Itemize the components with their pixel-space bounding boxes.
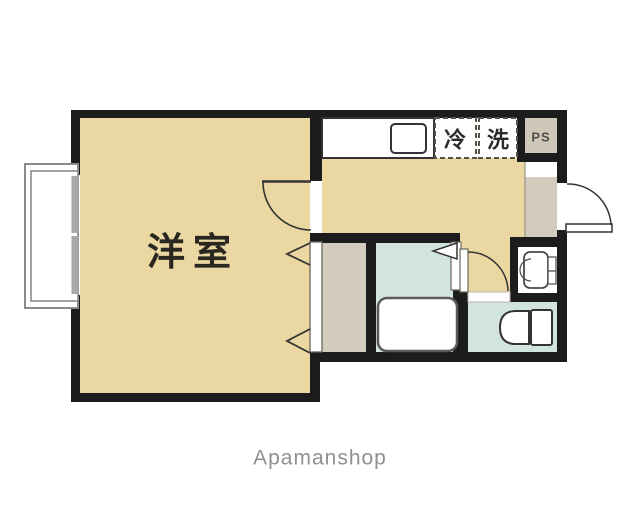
floorplan-drawing: 冷 洗 PS 洋室 Apamansh xyxy=(0,0,640,512)
wall-bottom-west xyxy=(71,393,320,402)
washbasin-bowl xyxy=(524,252,548,288)
entrance-door-icon xyxy=(566,184,612,232)
washbasin-icon xyxy=(520,252,556,288)
toilet-door-leaf xyxy=(460,249,468,292)
wall-closet-bath-divider xyxy=(366,242,376,352)
wall-ps-bottom xyxy=(517,153,557,162)
entrance-door-leaf xyxy=(566,224,612,232)
wall-room-divider xyxy=(310,110,322,181)
toilet-tank xyxy=(531,310,552,345)
room-door-opening xyxy=(310,181,322,233)
wall-closet-bath-top xyxy=(310,233,460,243)
washing-machine-label: 洗 xyxy=(487,128,509,153)
brand-watermark: Apamanshop xyxy=(253,447,387,470)
refrigerator-label: 冷 xyxy=(444,128,466,153)
wall-right-upper xyxy=(557,110,567,183)
washbasin-shelf-lower xyxy=(548,271,556,284)
window-sash-upper xyxy=(72,176,79,233)
western-room-label: 洋室 xyxy=(147,231,239,274)
toilet-bowl xyxy=(500,311,529,344)
window-inner-frame xyxy=(31,171,78,301)
window-icon xyxy=(25,164,79,308)
entrance-floor xyxy=(525,177,557,237)
wall-left-lower xyxy=(71,295,80,402)
pipe-space-label: PS xyxy=(531,130,550,145)
toilet-icon xyxy=(500,310,552,345)
wall-entrance-bottom xyxy=(515,237,564,247)
window-sash-lower xyxy=(72,236,79,294)
entrance-door-arc xyxy=(567,184,611,225)
bathtub-icon xyxy=(378,298,457,351)
washbasin-shelf-upper xyxy=(548,257,556,271)
toilet-door-opening xyxy=(468,292,510,302)
kitchen-sink-icon xyxy=(391,124,426,153)
closet-door-panel xyxy=(310,242,322,352)
wall-bottom-east xyxy=(310,352,567,362)
closet-floor xyxy=(322,242,366,352)
wall-right-lower xyxy=(557,230,567,362)
entrance-door-opening xyxy=(557,183,567,230)
floorplan-canvas: 冷 洗 PS 洋室 Apamansh xyxy=(0,0,640,512)
kitchen-dk-floor xyxy=(322,158,525,237)
wall-toilet-top xyxy=(510,293,557,302)
